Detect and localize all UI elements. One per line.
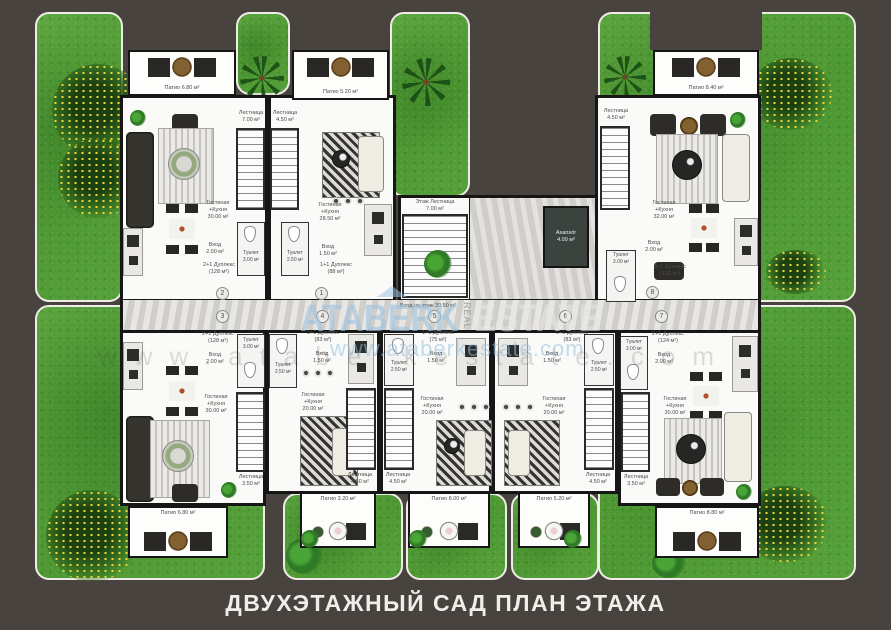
watermark-url: www.ataberkestate.com: [330, 336, 585, 362]
patio-label: Патио 8.80 м²: [690, 510, 725, 517]
unit-number-badge: 3: [216, 310, 229, 323]
dining-set-icon: [684, 204, 724, 252]
round-table-icon: [672, 150, 702, 180]
patio-furniture-icon: [669, 54, 743, 80]
sofa-icon: [724, 412, 752, 482]
side-table-icon: [682, 480, 698, 496]
unit-number-badge: 7: [655, 310, 668, 323]
sofa-icon: [358, 136, 384, 192]
patio-label: Патио 5.20 м²: [537, 496, 572, 503]
unit-stairs: [621, 392, 650, 472]
sofa-icon: [722, 134, 750, 202]
wc-label: Туалет 2.50 м²: [281, 250, 309, 263]
living-room-label: Гостиная +Кухня 32.00 м²: [642, 200, 686, 221]
patio-label: Патио 8.00 м²: [432, 496, 467, 503]
unit-stairs: [346, 388, 376, 470]
watermark-estate-text: ESTATE: [474, 298, 601, 341]
unit-stairs: [600, 126, 630, 210]
flower-bush-icon: [766, 250, 826, 294]
stairs-label: Лестница 7.00 м²: [232, 110, 270, 124]
plant-icon: [736, 484, 752, 500]
patio-label: Патио 8.40 м²: [689, 85, 724, 92]
entry-label: Вход 2.00 м²: [198, 242, 232, 256]
living-room-label: Гостиная +Кухня 30.00 м²: [196, 200, 240, 221]
living-room-label: Гостиная +Кухня 28.50 м²: [308, 202, 352, 223]
coffee-table-icon: [332, 150, 350, 168]
sofa-icon: [508, 430, 530, 476]
bar-stools-icon: [456, 402, 490, 412]
kitchen-counter-icon: [734, 218, 758, 266]
sofa-icon: [126, 132, 154, 228]
unit-stairs: [270, 128, 299, 210]
unit-type-label: 2+1 Дуплекс (132 м²): [646, 264, 694, 278]
unit-number-badge: 2: [216, 287, 229, 300]
armchair-icon: [656, 478, 680, 496]
kitchen-counter-icon: [123, 228, 143, 276]
patio-unit-2: Патио 6.80 м²: [128, 50, 236, 96]
coffee-table-icon: [444, 438, 460, 454]
plant-icon: [130, 110, 146, 126]
plant-icon: [424, 250, 452, 278]
stairs-label: Лестница 4.50 м²: [266, 110, 304, 124]
palm-tree-icon: [604, 56, 646, 98]
unit-type-label: 2+1 Дуплекс (128 м²): [196, 262, 242, 276]
patio-furniture-icon: [145, 54, 219, 80]
patio-label: Патио 6.80 м²: [161, 510, 196, 517]
plant-icon: [730, 112, 746, 128]
unit-stairs: [584, 388, 614, 470]
stairs-label: Лестница 4.50 м²: [578, 472, 618, 486]
palm-tree-icon: [402, 58, 450, 106]
watermark-brand: ATABERK: [300, 298, 459, 341]
patio-unit-8: Патио 8.40 м²: [653, 50, 759, 96]
armchair-icon: [700, 114, 726, 136]
stairs-label: Лестница 4.50 м²: [378, 472, 418, 486]
living-room-label: Гостиная +Кухня 30.00 м²: [652, 396, 698, 417]
elevator: Asansör 4.00 м²: [543, 206, 589, 268]
round-table-icon: [162, 440, 194, 472]
patio-label: Патио 3.20 м²: [321, 496, 356, 503]
palm-tree-icon: [240, 56, 284, 100]
plant-icon: [409, 530, 427, 548]
watermark-house-icon: [377, 286, 407, 297]
patio-label: Патио 5.20 м²: [323, 89, 358, 96]
wc-label: Туалет 3.00 м²: [606, 252, 636, 265]
unit-stairs: [236, 392, 265, 472]
unit-stairs: [236, 128, 265, 210]
armchair-icon: [650, 114, 676, 136]
patio-furniture-icon: [141, 528, 215, 554]
entry-label: Вход 2.00 м²: [638, 240, 670, 254]
patio-furniture-icon: [670, 528, 744, 554]
round-table-icon: [676, 434, 706, 464]
plant-icon: [301, 530, 319, 548]
kitchen-counter-icon: [364, 204, 392, 256]
round-table-icon: [168, 148, 200, 180]
plant-icon: [221, 482, 237, 498]
patio-unit-7: Патио 8.80 м²: [655, 506, 759, 558]
living-room-label: Гостиная +Кухня 20.00 м²: [292, 392, 334, 413]
unit-type-label: 1+1 Дуплекс (88 м²): [314, 262, 358, 276]
dark-notch-above-patio-8: [650, 10, 762, 50]
plan-title: ДВУХЭТАЖНЫЙ САД ПЛАН ЭТАЖА: [0, 590, 891, 617]
stairs-label: Лестница 4.50 м²: [596, 108, 636, 122]
unit-stairs: [384, 388, 414, 470]
living-room-label: Гостиная +Кухня 30.00 м²: [194, 394, 238, 415]
entry-label: Вход 1.50 м²: [312, 244, 344, 258]
patio-furniture-icon: [304, 54, 378, 80]
bar-stools-icon: [500, 402, 534, 412]
living-room-label: Гостиная +Кухня 20.00 м²: [412, 396, 452, 417]
living-room-label: Гостиная +Кухня 20.00 м²: [534, 396, 574, 417]
armchair-icon: [172, 484, 198, 502]
sofa-icon: [464, 430, 486, 476]
stairs-label: Лестница 3.50 м²: [616, 474, 656, 488]
watermark-real-text: REAL: [462, 302, 472, 330]
patio-unit-1: Патио 5.20 м²: [292, 50, 389, 100]
stairs-label: Лестница 3.50 м²: [232, 474, 270, 488]
stairs-label: Лестница 4.50 м²: [340, 472, 380, 486]
unit-number-badge: 8: [646, 286, 659, 299]
plant-icon: [564, 530, 582, 548]
side-table-icon: [680, 117, 698, 135]
armchair-icon: [700, 478, 724, 496]
core-stairs-label: Этаж Лестница 7.00 м²: [400, 199, 470, 213]
floor-plan-image: Этаж Лестница 7.00 м² Asansör 4.00 м² Вх…: [0, 0, 891, 630]
patio-unit-3: Патио 6.80 м²: [128, 506, 228, 558]
flower-bush-icon: [750, 58, 832, 130]
kitchen-counter-icon: [732, 336, 758, 392]
patio-label: Патио 6.80 м²: [165, 85, 200, 92]
